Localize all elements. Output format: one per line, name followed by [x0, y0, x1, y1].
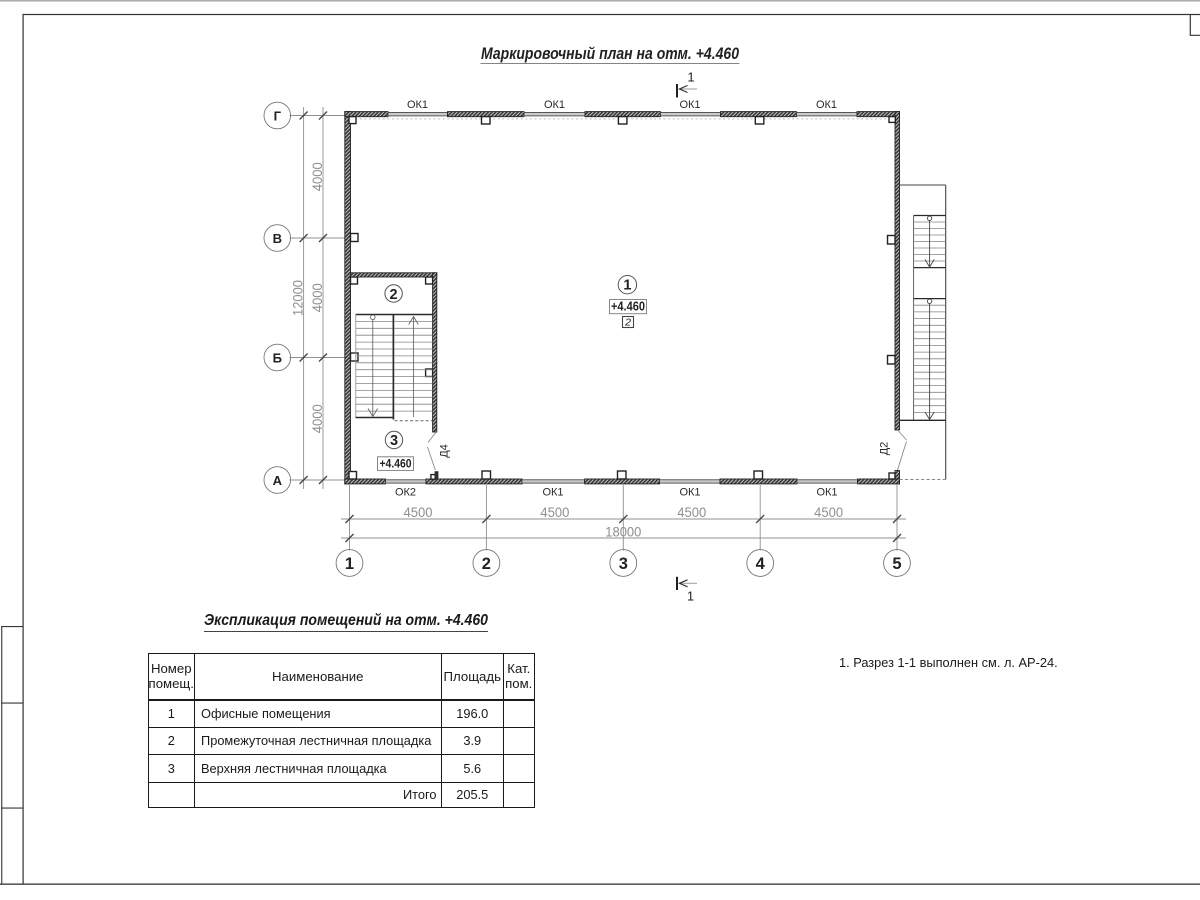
- svg-text:Экспликация помещений на отм.: Экспликация помещений на отм. +4.460: [204, 612, 488, 629]
